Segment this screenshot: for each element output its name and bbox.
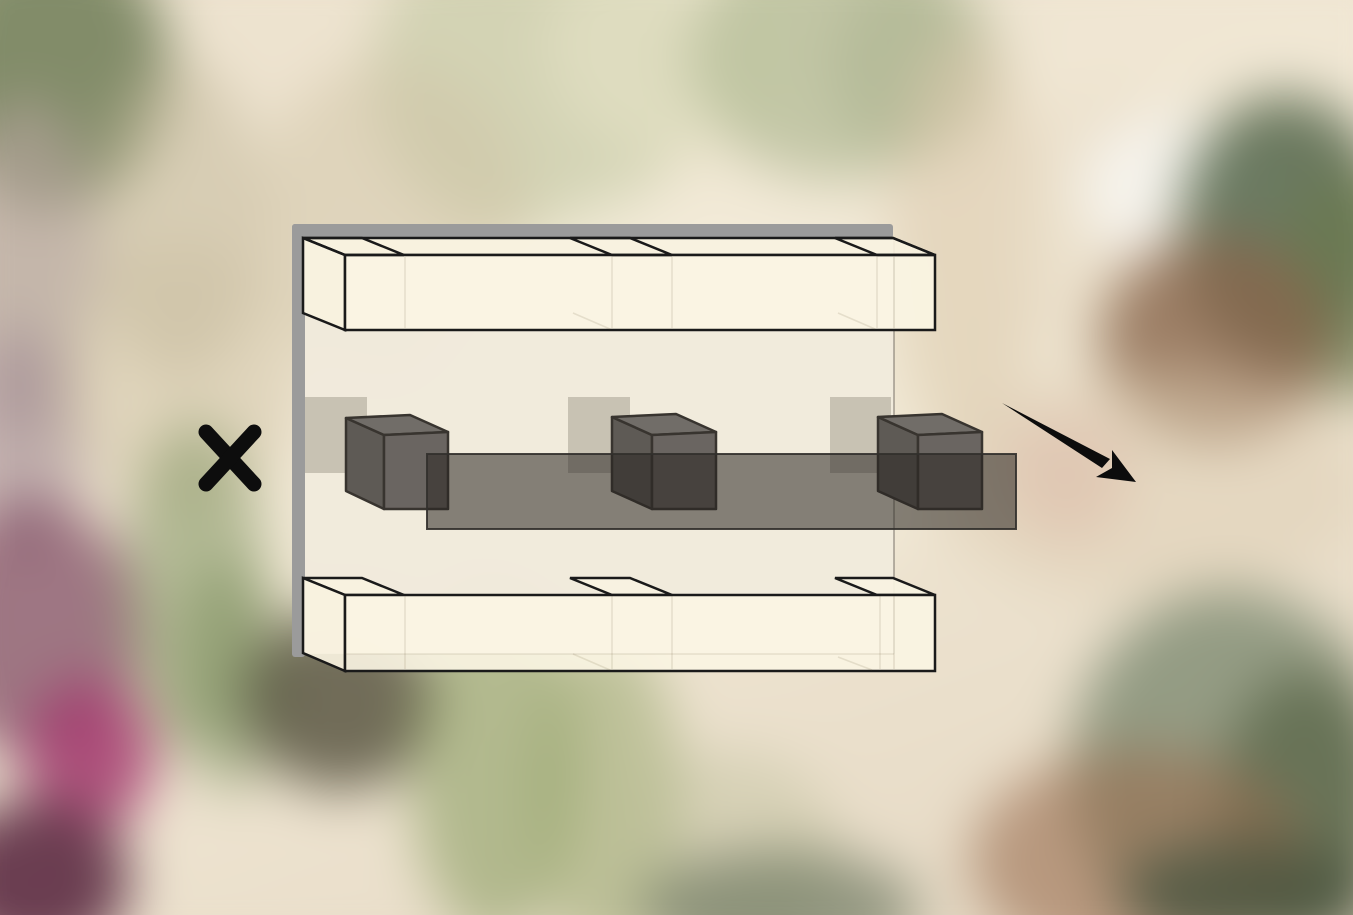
bottom-rail-left-face <box>303 578 345 671</box>
shelf-instruction-diagram <box>0 0 1353 915</box>
screenshot-root <box>0 0 1353 915</box>
panel-gray-top-edge <box>292 224 893 238</box>
sliding-bar <box>427 454 1016 529</box>
direction-arrow-shaft <box>1002 403 1110 468</box>
top-rail-front-face <box>345 255 935 330</box>
